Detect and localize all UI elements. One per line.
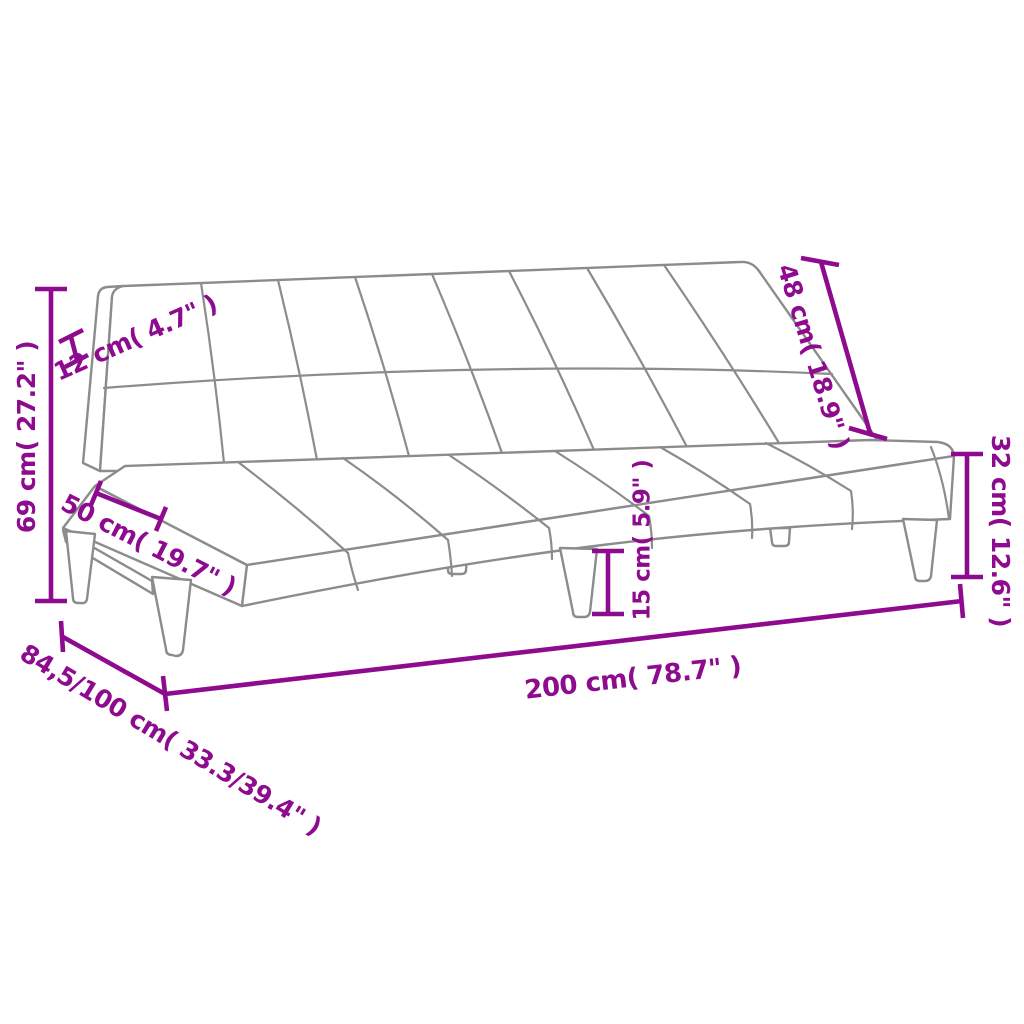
leg-front-left xyxy=(152,577,191,656)
dimension-leg-height-label: 15 cm( 5.9" ) xyxy=(630,460,656,621)
dimension-diagram: 69 cm( 27.2" ) 12 cm( 4.7" ) 50 cm( 19.7… xyxy=(0,0,1024,1024)
sofa-dimension-drawing: 69 cm( 27.2" ) 12 cm( 4.7" ) 50 cm( 19.7… xyxy=(0,0,1024,1024)
leg-back-left xyxy=(66,531,95,603)
leg-back-right xyxy=(770,528,790,546)
dimension-overall-depth-label: 84,5/100 cm( 33.3/39.4" ) xyxy=(15,638,326,841)
leg-front-right xyxy=(903,519,937,581)
dimension-overall-length: 200 cm( 78.7" ) xyxy=(163,584,963,711)
backrest-front-panel xyxy=(100,262,876,471)
dimension-seat-height-label: 32 cm( 12.6" ) xyxy=(986,435,1015,627)
dimension-back-height-label: 69 cm( 27.2" ) xyxy=(12,341,41,533)
dimension-overall-length-label: 200 cm( 78.7" ) xyxy=(523,651,743,705)
dimension-back-height: 69 cm( 27.2" ) xyxy=(12,289,67,601)
dimension-seat-height-line xyxy=(951,454,983,577)
leg-front-center xyxy=(560,548,597,617)
